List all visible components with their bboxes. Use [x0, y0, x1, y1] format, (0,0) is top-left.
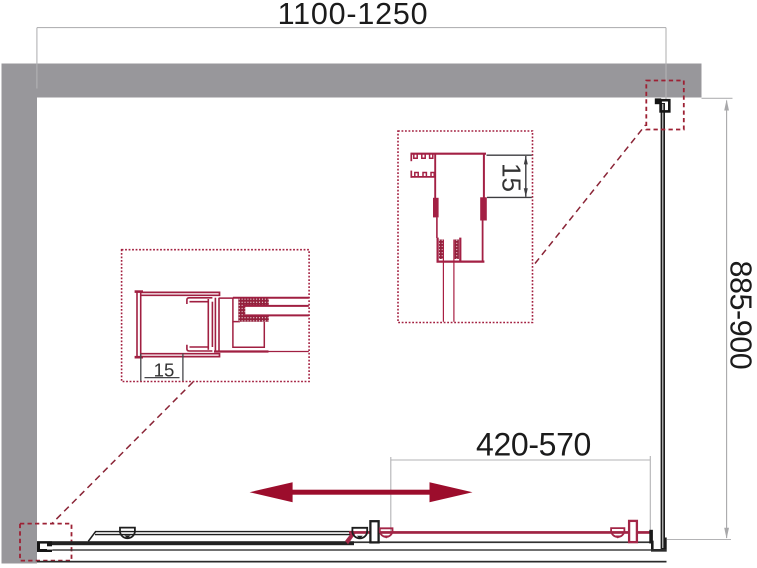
- svg-text:1100-1250: 1100-1250: [278, 0, 429, 31]
- svg-text:885-900: 885-900: [723, 261, 757, 370]
- svg-text:420-570: 420-570: [476, 427, 591, 463]
- svg-text:15: 15: [154, 359, 175, 380]
- svg-text:15: 15: [497, 163, 527, 192]
